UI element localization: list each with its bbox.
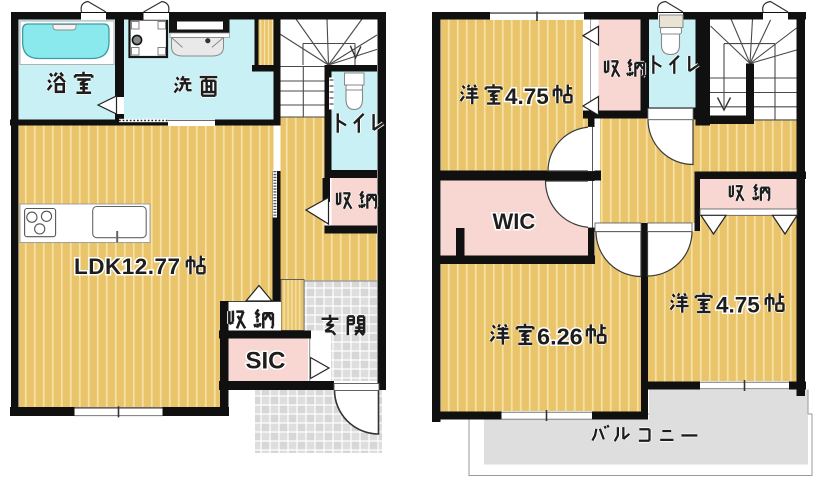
svg-text:4.75: 4.75 bbox=[505, 84, 549, 109]
svg-text:SIC: SIC bbox=[246, 348, 286, 375]
svg-text:WIC: WIC bbox=[493, 209, 536, 234]
svg-text:LDK12.77: LDK12.77 bbox=[74, 254, 181, 279]
svg-text:6.26: 6.26 bbox=[537, 324, 583, 350]
svg-text:4.75: 4.75 bbox=[716, 293, 760, 318]
